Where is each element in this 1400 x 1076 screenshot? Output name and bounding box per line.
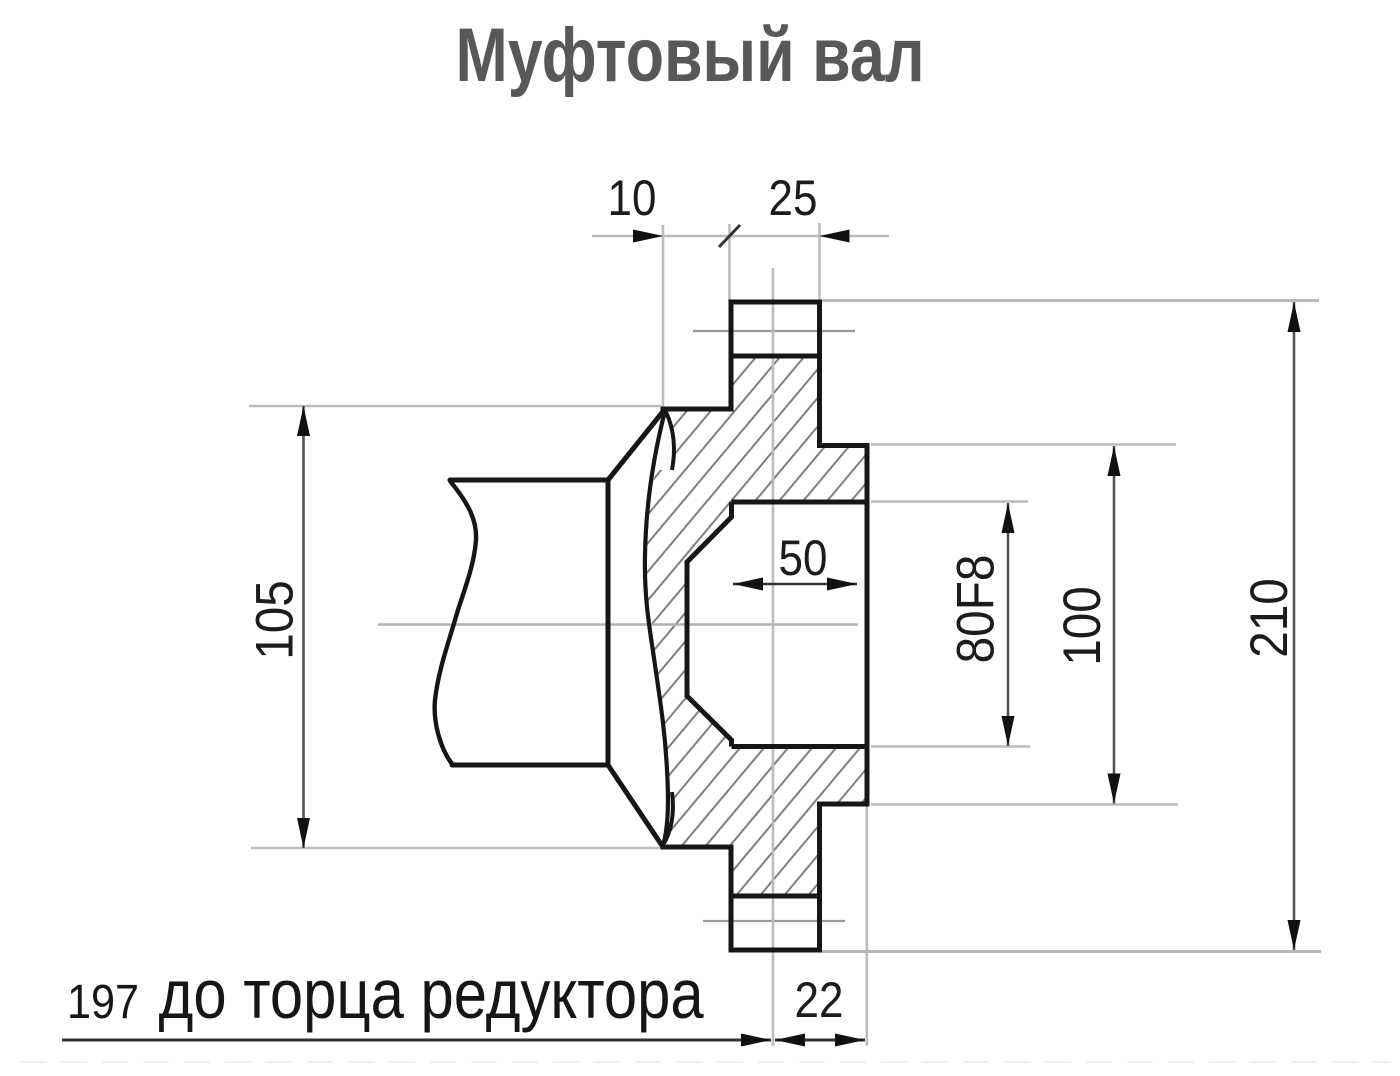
svg-text:210: 210 [1239,578,1299,658]
svg-text:10: 10 [608,169,657,225]
svg-text:100: 100 [1052,586,1112,666]
svg-text:50: 50 [779,529,828,585]
svg-text:25: 25 [769,169,818,225]
svg-text:22: 22 [795,971,844,1027]
svg-text:80F8: 80F8 [945,555,1005,664]
svg-text:Муфтовый вал: Муфтовый вал [455,12,924,97]
svg-text:до торца редуктора: до торца редуктора [159,955,705,1034]
svg-text:197: 197 [67,975,139,1029]
svg-text:105: 105 [244,580,304,660]
